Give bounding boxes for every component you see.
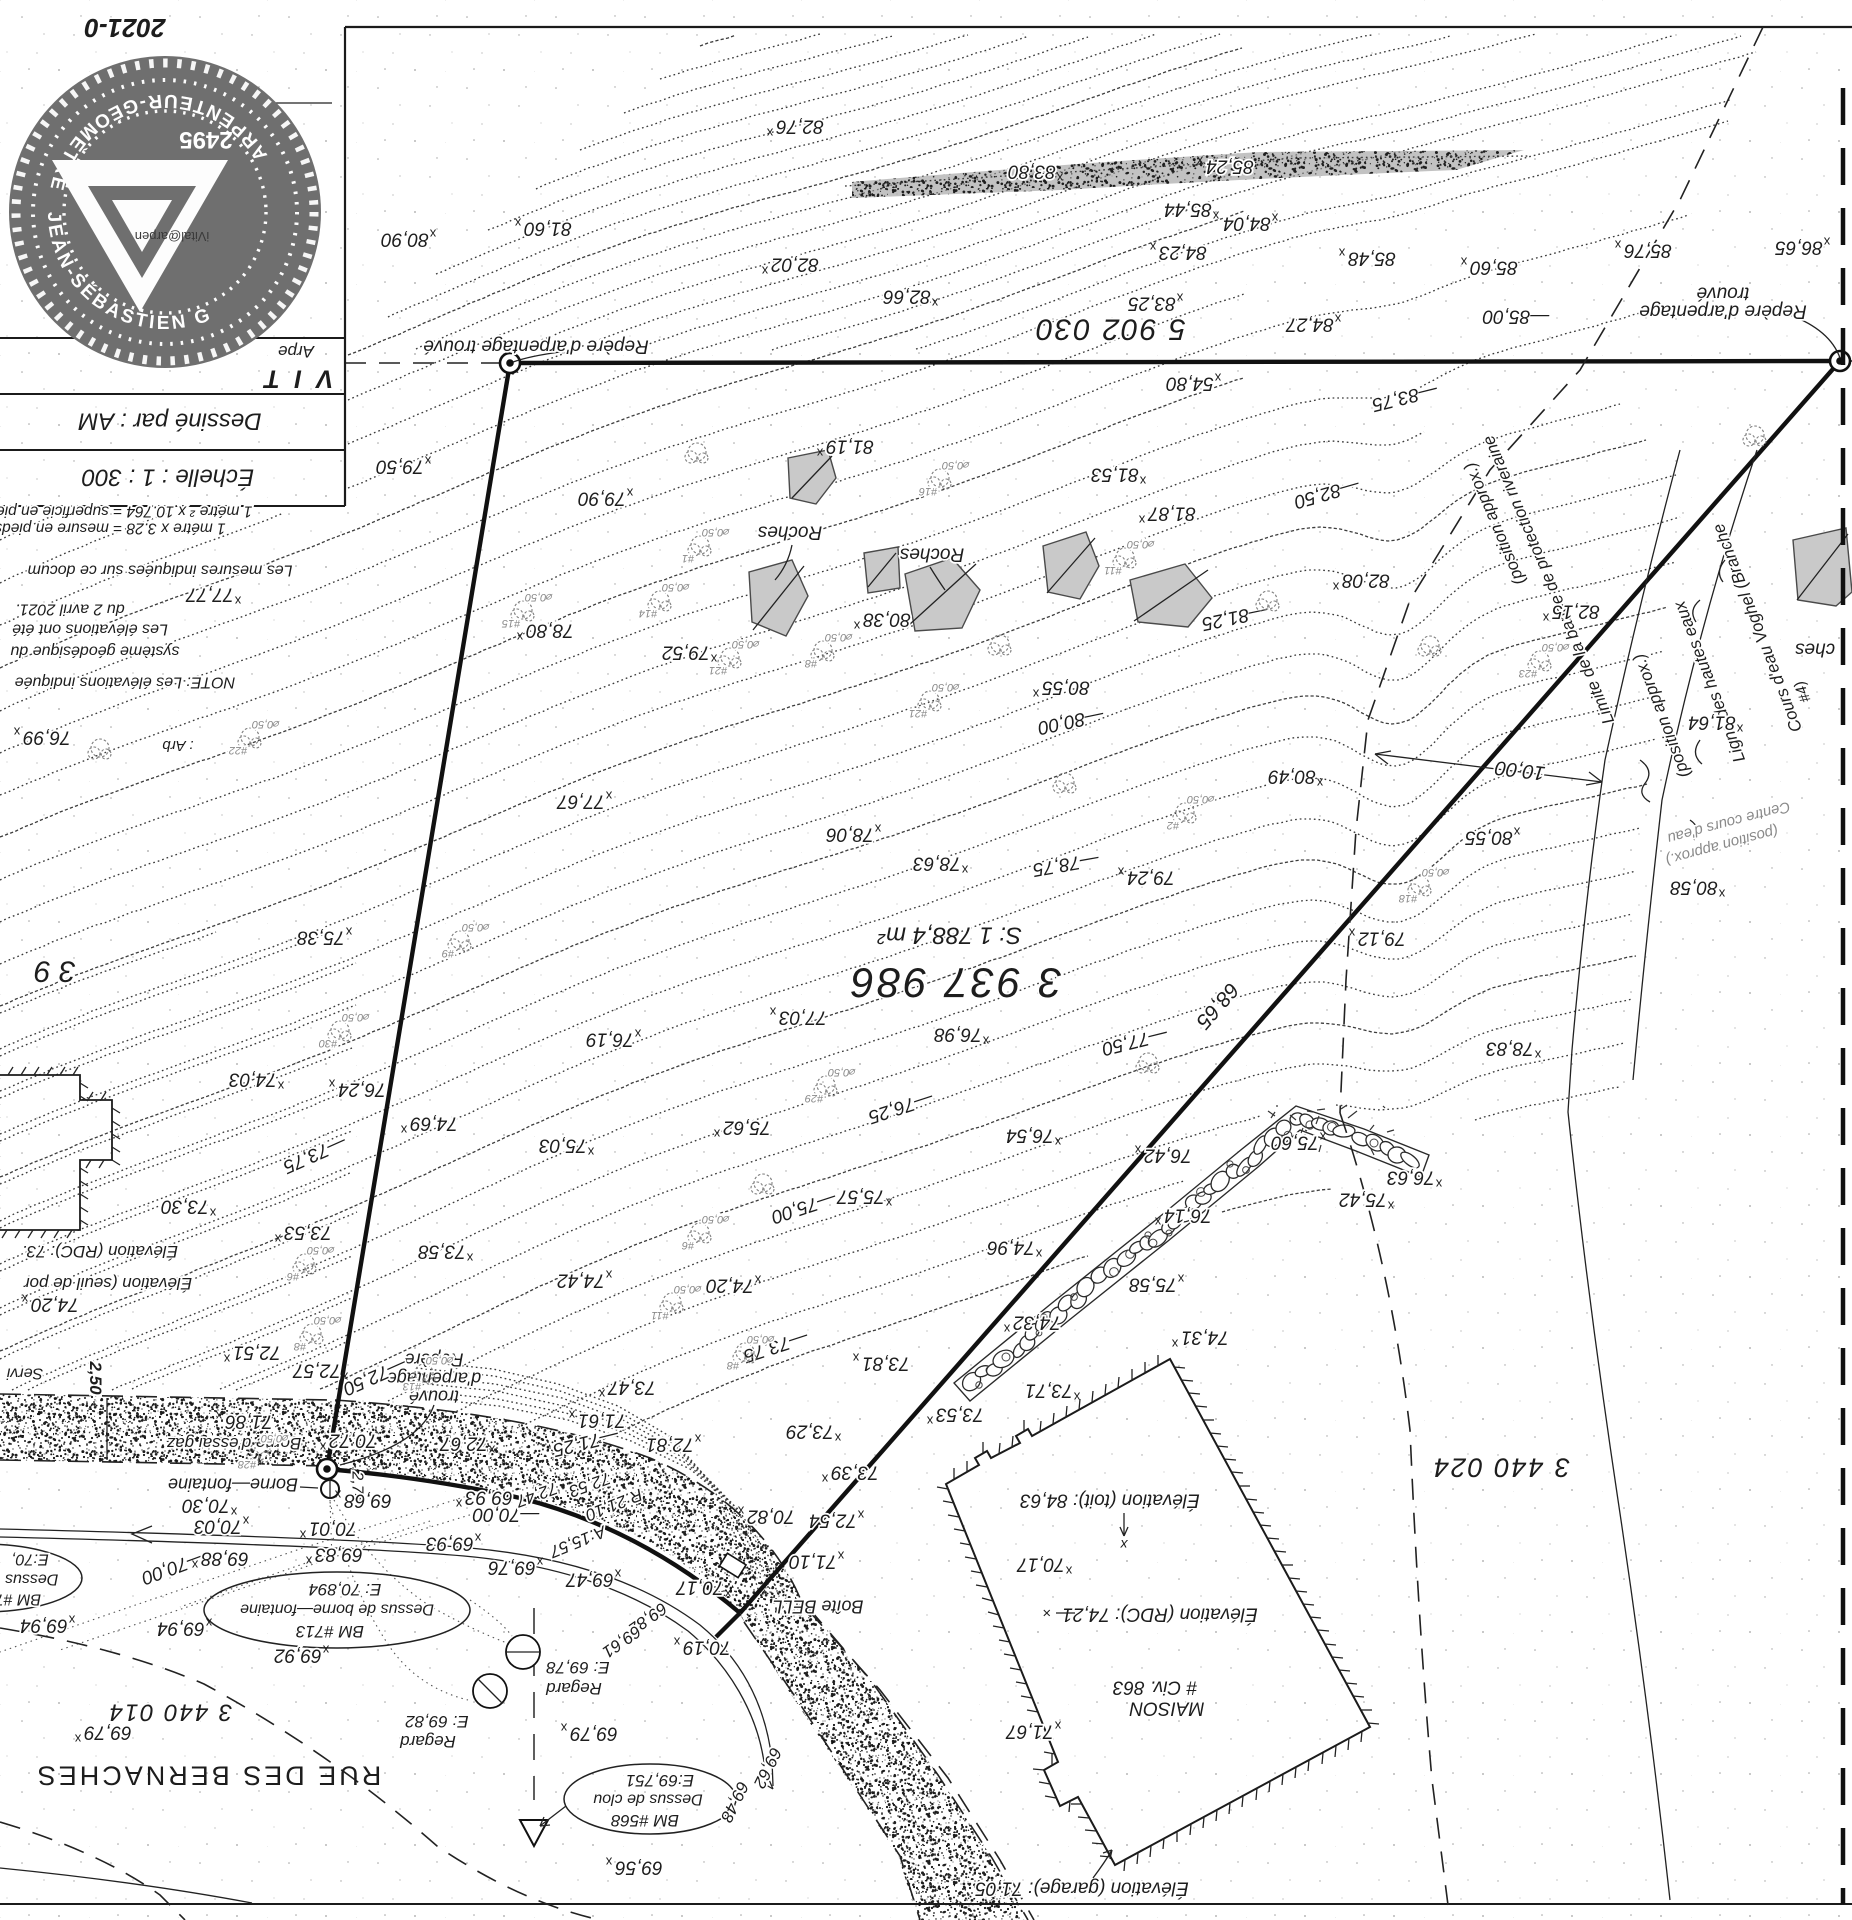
svg-text:⌀0,50: ⌀0,50 <box>313 1314 342 1326</box>
svg-text:⌀0,50: ⌀0,50 <box>260 1432 289 1444</box>
svg-text:x: x <box>345 924 352 939</box>
svg-text:75,03: 75,03 <box>539 1134 587 1155</box>
svg-text:76,98: 76,98 <box>934 1023 982 1044</box>
svg-text:x: x <box>488 1442 495 1457</box>
svg-text:x: x <box>1338 245 1345 260</box>
svg-text:x: x <box>305 1553 312 1568</box>
svg-text:x: x <box>274 1231 281 1246</box>
svg-text:x: x <box>769 1004 776 1019</box>
svg-text:x: x <box>1319 1129 1326 1144</box>
svg-text:x: x <box>319 1439 326 1454</box>
svg-text:69,94: 69,94 <box>20 1614 68 1635</box>
svg-text:85,60: 85,60 <box>1470 256 1518 277</box>
svg-text:⌀0,50: ⌀0,50 <box>673 1283 702 1295</box>
svg-text:#29: #29 <box>805 1092 823 1104</box>
svg-text:77,77: 77,77 <box>185 583 234 604</box>
svg-text:E:69,751: E:69,751 <box>626 1771 694 1790</box>
svg-text:70,17: 70,17 <box>675 1576 724 1597</box>
svg-text:85,48: 85,48 <box>1348 247 1396 268</box>
svg-text:80,55: 80,55 <box>1042 676 1090 697</box>
svg-text:x: x <box>516 629 523 644</box>
svg-text:Dessus de clou: Dessus de clou <box>593 1790 702 1807</box>
svg-text:75,60: 75,60 <box>1271 1131 1319 1152</box>
svg-text:x: x <box>626 485 633 500</box>
svg-text:76,99: 76,99 <box>23 726 71 747</box>
svg-text:x: x <box>1056 170 1063 185</box>
svg-text:73,39: 73,39 <box>831 1461 879 1482</box>
svg-text:70,72: 70,72 <box>329 1429 377 1450</box>
svg-text:83,25: 83,25 <box>1128 292 1176 313</box>
svg-text:85,44: 85,44 <box>1164 198 1212 219</box>
svg-text:84,04: 84,04 <box>1223 212 1271 233</box>
svg-text:Élévation (RDC): 74,21: Élévation (RDC): 74,21 <box>1062 1603 1257 1624</box>
svg-text:x: x <box>1334 311 1341 326</box>
svg-text:Boîte BELL: Boîte BELL <box>772 1597 863 1617</box>
svg-text:# Civ. 863: # Civ. 863 <box>1113 1676 1198 1697</box>
svg-text:81,53: 81,53 <box>1091 463 1139 484</box>
svg-text:x: x <box>1271 210 1278 225</box>
svg-text:x: x <box>1117 864 1124 879</box>
svg-text:x: x <box>1035 1246 1042 1261</box>
svg-text:69,94: 69,94 <box>157 1617 205 1638</box>
svg-text:73,29: 73,29 <box>786 1420 834 1441</box>
svg-text:78,80: 78,80 <box>526 619 574 640</box>
svg-text:81,64: 81,64 <box>1688 711 1736 732</box>
svg-text:x: x <box>1214 370 1221 385</box>
svg-text:78,63: 78,63 <box>913 852 961 873</box>
svg-text:73,30: 73,30 <box>161 1195 209 1216</box>
svg-text:⌀0,50: ⌀0,50 <box>1541 641 1570 653</box>
svg-text:#16: #16 <box>918 485 937 497</box>
svg-text:x: x <box>1065 1563 1072 1578</box>
svg-text:—85,00: —85,00 <box>1482 305 1550 326</box>
svg-text:73,71: 73,71 <box>1025 1379 1073 1400</box>
svg-text:⌀0,50: ⌀0,50 <box>341 1011 370 1023</box>
svg-text:⌀0,50: ⌀0,50 <box>251 718 280 730</box>
svg-text:69,93: 69,93 <box>426 1532 474 1553</box>
svg-text:⌀0,50: ⌀0,50 <box>731 638 760 650</box>
svg-text:x: x <box>1120 1537 1129 1553</box>
svg-text:E: 69,82: E: 69,82 <box>405 1712 469 1731</box>
svg-text:#11: #11 <box>1104 564 1122 576</box>
svg-text:x: x <box>429 226 436 241</box>
svg-text:x: x <box>1196 153 1203 168</box>
svg-text:Les mesures indiquées sur ce d: Les mesures indiquées sur ce docum <box>27 561 292 578</box>
svg-text:#8: #8 <box>804 657 817 669</box>
svg-text:69,79: 69,79 <box>570 1722 618 1743</box>
svg-text:x: x <box>1736 721 1743 736</box>
svg-text:73,53: 73,53 <box>936 1403 984 1424</box>
svg-text:#8: #8 <box>726 1359 739 1371</box>
svg-text:⌀0,50: ⌀0,50 <box>524 591 553 603</box>
svg-text:⌀0,50: ⌀0,50 <box>306 1244 335 1256</box>
svg-text:x: x <box>761 263 768 278</box>
svg-text:3 937 986: 3 937 986 <box>848 959 1062 1006</box>
svg-text:#6: #6 <box>286 1270 299 1282</box>
svg-text:76,14: 76,14 <box>1164 1204 1212 1225</box>
svg-text:x: x <box>634 1026 641 1041</box>
svg-text:x: x <box>205 1615 212 1630</box>
svg-text:x: x <box>885 1195 892 1210</box>
svg-text:75,42: 75,42 <box>1339 1188 1387 1209</box>
svg-text:72,67: 72,67 <box>439 1432 488 1453</box>
svg-text:x: x <box>1542 610 1549 625</box>
svg-text:79,90: 79,90 <box>578 487 626 508</box>
svg-text:⌀0,50: ⌀0,50 <box>1186 793 1215 805</box>
svg-text:BM #568: BM #568 <box>610 1811 679 1830</box>
svg-text:E: 70,894: E: 70,894 <box>309 1580 382 1599</box>
svg-text:x: x <box>1177 1271 1184 1286</box>
svg-text:#21: #21 <box>709 664 727 676</box>
svg-text:⌀0,50: ⌀0,50 <box>1421 866 1450 878</box>
svg-text:2495: 2495 <box>179 126 232 153</box>
svg-text:69,76: 69,76 <box>488 1556 536 1577</box>
svg-text:#8: #8 <box>293 1340 306 1352</box>
svg-text:RUE DES BERNACHES: RUE DES BERNACHES <box>35 1761 382 1791</box>
svg-text:69,83: 69,83 <box>315 1543 363 1564</box>
svg-text:système géodésique du: système géodésique du <box>10 642 179 659</box>
svg-text:x: x <box>1316 775 1323 790</box>
svg-text:⌀0,50: ⌀0,50 <box>1126 538 1155 550</box>
svg-text:x: x <box>1718 886 1725 901</box>
svg-text:79,50: 79,50 <box>376 455 424 476</box>
svg-text:x: x <box>821 1471 828 1486</box>
svg-text:trouvé: trouvé <box>1697 282 1750 303</box>
svg-text:86,65: 86,65 <box>1775 236 1823 257</box>
svg-text:Roches: Roches <box>899 543 964 564</box>
svg-text:Repère d'arpentage trouvé: Repère d'arpentage trouvé <box>423 335 648 356</box>
svg-text:×: × <box>1043 1604 1052 1621</box>
svg-text:MAISON: MAISON <box>1129 1697 1204 1718</box>
svg-text:⌀0,50: ⌀0,50 <box>701 526 730 538</box>
svg-text:x: x <box>1154 1214 1161 1229</box>
svg-text:x: x <box>1614 237 1621 252</box>
svg-text:x: x <box>816 445 823 460</box>
svg-text:70,30: 70,30 <box>182 1494 230 1515</box>
svg-text:x: x <box>514 215 521 230</box>
svg-text:x: x <box>215 1408 222 1423</box>
svg-text:#15: #15 <box>501 617 520 629</box>
svg-text:x: x <box>1332 579 1339 594</box>
svg-text:74,03: 74,03 <box>229 1068 277 1089</box>
svg-text:x: x <box>1176 290 1183 305</box>
svg-text:Repère d'arpentage: Repère d'arpentage <box>1639 300 1806 321</box>
svg-text:Dessus d: Dessus d <box>0 1570 58 1587</box>
svg-text:Servi: Servi <box>6 1364 43 1381</box>
svg-text:54,80: 54,80 <box>1166 372 1214 393</box>
svg-text:x: x <box>234 593 241 608</box>
svg-text:Dessiné par : AM: Dessiné par : AM <box>78 408 261 435</box>
svg-text:85,76: 85,76 <box>1624 239 1672 260</box>
svg-text:#22: #22 <box>229 744 247 756</box>
svg-text:⌀0,50: ⌀0,50 <box>931 681 960 693</box>
svg-text:⌀0,50: ⌀0,50 <box>746 1333 775 1345</box>
svg-text:75,62: 75,62 <box>723 1116 771 1137</box>
svg-text:x: x <box>614 1566 621 1581</box>
svg-text:84,27: 84,27 <box>1285 313 1334 334</box>
svg-text:75,38: 75,38 <box>297 926 345 947</box>
svg-text:73,81: 73,81 <box>862 1352 910 1373</box>
svg-text:77,03: 77,03 <box>779 1006 827 1027</box>
svg-text:x: x <box>766 125 773 140</box>
svg-text:1 métre x 3.28 = mesure en p: 1 métre x 3.28 = mesure en pieds <box>0 520 226 537</box>
svg-text:69,79: 69,79 <box>84 1721 132 1742</box>
svg-text:#18: #18 <box>1398 892 1417 904</box>
svg-text:Les élévations ont été: Les élévations ont été <box>12 620 168 637</box>
svg-text:#13: #13 <box>402 1380 421 1392</box>
svg-text:Regard: Regard <box>400 1732 456 1751</box>
svg-text:x: x <box>694 1431 701 1446</box>
svg-text:Arpe: Arpe <box>278 342 315 361</box>
svg-text:x: x <box>68 1612 75 1627</box>
svg-text:82,66: 82,66 <box>883 285 931 306</box>
svg-text:x: x <box>1513 824 1520 839</box>
svg-text:BM #7: BM #7 <box>0 1590 41 1607</box>
svg-text:74,20: 74,20 <box>31 1293 79 1314</box>
svg-text:x: x <box>853 618 860 633</box>
svg-text:2021-0: 2021-0 <box>84 13 166 43</box>
svg-text:76,24: 76,24 <box>338 1078 386 1099</box>
svg-text:79,52: 79,52 <box>662 641 710 662</box>
svg-text:80,55: 80,55 <box>1465 826 1513 847</box>
svg-text:NOTE: Les élévations indiquée: NOTE: Les élévations indiquée <box>15 673 236 690</box>
svg-text:74,20: 74,20 <box>706 1274 754 1295</box>
svg-text:x: x <box>1460 254 1467 269</box>
svg-text:74,31: 74,31 <box>1181 1326 1229 1347</box>
svg-text:79,12: 79,12 <box>1358 927 1406 948</box>
svg-text:#6: #6 <box>681 1239 694 1251</box>
svg-text:⌀0,50: ⌀0,50 <box>661 581 690 593</box>
svg-text:x: x <box>605 1854 612 1869</box>
svg-text:x: x <box>1171 1336 1178 1351</box>
svg-text:x: x <box>1054 1134 1061 1149</box>
svg-text:iVital@arpen: iVital@arpen <box>135 229 209 244</box>
svg-text:S: 1 788,4 m²: S: 1 788,4 m² <box>877 922 1022 949</box>
svg-text:x: x <box>1073 1389 1080 1404</box>
svg-text:76,63: 76,63 <box>1387 1166 1435 1187</box>
svg-text:76,19: 76,19 <box>586 1028 634 1049</box>
svg-text:x: x <box>1032 686 1039 701</box>
svg-text:#9: #9 <box>442 947 454 959</box>
svg-text:71,10: 71,10 <box>789 1550 837 1571</box>
svg-text:x: x <box>1149 239 1156 254</box>
svg-text:x: x <box>223 1351 230 1366</box>
svg-text:83,80: 83,80 <box>1008 160 1056 181</box>
svg-text:x: x <box>455 1496 462 1511</box>
svg-text:x: x <box>931 295 938 310</box>
svg-text:81,87: 81,87 <box>1147 502 1196 523</box>
svg-text:x: x <box>466 1250 473 1265</box>
svg-text:#21: #21 <box>909 707 927 719</box>
svg-text:74,96: 74,96 <box>987 1236 1035 1257</box>
svg-text:x: x <box>1212 208 1219 223</box>
svg-text:71,86: 71,86 <box>225 1410 273 1431</box>
svg-text:x: x <box>568 1407 575 1422</box>
svg-text:69,68: 69,68 <box>344 1489 392 1510</box>
svg-text:81,60: 81,60 <box>524 217 572 238</box>
svg-text:x: x <box>74 1731 81 1746</box>
svg-text:x: x <box>605 788 612 803</box>
svg-text:x: x <box>605 1267 612 1282</box>
svg-text:x: x <box>13 724 20 739</box>
svg-text:70,01: 70,01 <box>309 1517 357 1538</box>
svg-text:82,76: 82,76 <box>776 115 824 136</box>
svg-text:72,81: 72,81 <box>646 1433 694 1454</box>
svg-text:#11: #11 <box>651 1309 669 1321</box>
svg-text:5 902 030: 5 902 030 <box>1034 313 1185 346</box>
svg-text:84,23: 84,23 <box>1159 241 1207 262</box>
svg-text:72,51: 72,51 <box>233 1341 281 1362</box>
svg-text:2,50: 2,50 <box>86 1360 105 1395</box>
svg-text:78,83: 78,83 <box>1486 1037 1534 1058</box>
svg-text:80,49: 80,49 <box>1268 765 1316 786</box>
svg-text:Roches: Roches <box>757 521 822 542</box>
svg-text:x: x <box>536 1554 543 1569</box>
svg-text:#2: #2 <box>1167 819 1179 831</box>
svg-text:x: x <box>21 1291 28 1306</box>
svg-text:x: x <box>230 1504 237 1519</box>
svg-text:Élévation (toit): 84,63: Élévation (toit): 84,63 <box>1020 1489 1200 1510</box>
svg-text:74,42: 74,42 <box>557 1269 605 1290</box>
svg-text:x: x <box>724 1586 731 1601</box>
svg-text:V I T: V I T <box>261 364 334 392</box>
svg-text:x: x <box>400 1122 407 1137</box>
svg-text:x: x <box>754 1272 761 1287</box>
svg-text:x: x <box>1387 1198 1394 1213</box>
svg-text:80,90: 80,90 <box>381 228 429 249</box>
svg-text:x: x <box>1138 512 1145 527</box>
svg-text:73,53: 73,53 <box>284 1221 332 1242</box>
svg-text:x: x <box>673 1634 680 1649</box>
svg-text:x: x <box>424 453 431 468</box>
svg-text:x: x <box>474 1530 481 1545</box>
svg-text:ches: ches <box>1794 638 1835 659</box>
svg-text:71,67: 71,67 <box>1005 1720 1054 1741</box>
svg-text:E: 69,78: E: 69,78 <box>546 1658 610 1677</box>
svg-text:70,19: 70,19 <box>683 1636 731 1657</box>
svg-text:x: x <box>341 1369 348 1384</box>
svg-text:82,02: 82,02 <box>771 253 819 274</box>
svg-text:x: x <box>328 1076 335 1091</box>
svg-text:x: x <box>1534 1047 1541 1062</box>
svg-text:x: x <box>1003 1321 1010 1336</box>
svg-text:x: x <box>334 1487 341 1502</box>
svg-text:⌀0,50: ⌀0,50 <box>941 459 970 471</box>
svg-text:x: x <box>587 1144 594 1159</box>
svg-text:x: x <box>926 1413 933 1428</box>
svg-text:x: x <box>874 821 881 836</box>
svg-text:⌀0,50: ⌀0,50 <box>701 1213 730 1225</box>
svg-text:Dessus de borne—fontaine: Dessus de borne—fontaine <box>240 1600 434 1617</box>
svg-text:x: x <box>1823 234 1830 249</box>
svg-text:x: x <box>1134 1142 1141 1157</box>
svg-text:x: x <box>961 862 968 877</box>
svg-text:x: x <box>837 1548 844 1563</box>
svg-text:x: x <box>242 1513 249 1528</box>
svg-text:82,15: 82,15 <box>1552 600 1600 621</box>
svg-text:x: x <box>852 1350 859 1365</box>
svg-text:69,47: 69,47 <box>565 1568 614 1589</box>
svg-text:x: x <box>737 1503 744 1518</box>
svg-text:Échelle : 1 : 300: Échelle : 1 : 300 <box>81 464 254 491</box>
svg-text:Borne—fontaine: Borne—fontaine <box>168 1475 298 1495</box>
svg-text:: Arb: : Arb <box>162 737 193 754</box>
svg-text:Élévation (RDC): 73.: Élévation (RDC): 73. <box>22 1242 178 1261</box>
svg-text:76,54: 76,54 <box>1006 1124 1054 1145</box>
svg-text:x: x <box>857 1507 864 1522</box>
svg-text:75,57: 75,57 <box>836 1185 885 1206</box>
svg-text:70,17: 70,17 <box>1016 1553 1065 1574</box>
svg-text:E:70,: E:70, <box>11 1550 48 1567</box>
svg-text:79,24: 79,24 <box>1127 866 1175 887</box>
svg-text:3 9: 3 9 <box>34 955 76 988</box>
svg-text:⌀0,50: ⌀0,50 <box>425 1354 454 1366</box>
svg-text:82,08: 82,08 <box>1342 569 1390 590</box>
svg-text:75,58: 75,58 <box>1129 1273 1177 1294</box>
svg-text:⌀0,50: ⌀0,50 <box>461 921 490 933</box>
svg-text:BM #713: BM #713 <box>295 1622 364 1641</box>
svg-text:1 métre ² x 10.764 = superfici: 1 métre ² x 10.764 = superficie en pieds <box>0 503 252 520</box>
svg-text:x: x <box>322 1642 329 1657</box>
svg-text:72,54: 72,54 <box>809 1509 857 1530</box>
svg-text:x: x <box>713 1126 720 1141</box>
svg-text:x: x <box>834 1430 841 1445</box>
svg-text:x: x <box>299 1527 306 1542</box>
svg-text:80,58: 80,58 <box>1670 876 1718 897</box>
svg-text:81,19: 81,19 <box>826 435 874 456</box>
svg-text:78,06: 78,06 <box>826 823 874 844</box>
svg-text:73,47: 73,47 <box>607 1376 656 1397</box>
svg-text:80,38: 80,38 <box>863 608 911 629</box>
svg-text:69,92: 69,92 <box>274 1644 322 1665</box>
svg-text:#1: #1 <box>682 552 694 564</box>
svg-text:#23: #23 <box>1518 667 1537 679</box>
svg-text:⌀0,50: ⌀0,50 <box>827 1066 856 1078</box>
svg-text:#14: #14 <box>639 607 657 619</box>
svg-text:#28: #28 <box>237 1458 256 1470</box>
svg-text:du 2 avril 2021.: du 2 avril 2021. <box>15 600 124 617</box>
svg-text:77,67: 77,67 <box>556 790 605 811</box>
svg-text:#30: #30 <box>318 1037 337 1049</box>
svg-text:73,58: 73,58 <box>418 1240 466 1261</box>
svg-text:x: x <box>1139 473 1146 488</box>
svg-text:3 440 024: 3 440 024 <box>1432 1453 1570 1483</box>
svg-text:x: x <box>560 1720 567 1735</box>
svg-text:Regard: Regard <box>546 1679 602 1698</box>
svg-text:⌀0,50: ⌀0,50 <box>824 631 853 643</box>
svg-text:69,56: 69,56 <box>615 1856 663 1877</box>
svg-text:Élévation (seuil de por: Élévation (seuil de por <box>23 1274 193 1293</box>
svg-text:85,24: 85,24 <box>1206 155 1254 176</box>
svg-text:x: x <box>191 1557 198 1572</box>
svg-text:71,61: 71,61 <box>578 1409 626 1430</box>
svg-text:x: x <box>277 1078 284 1093</box>
svg-text:Élévation (garage): 71,05: Élévation (garage): 71,05 <box>975 1877 1189 1898</box>
svg-text:x: x <box>1054 1718 1061 1733</box>
svg-text:x: x <box>982 1033 989 1048</box>
svg-text:x: x <box>1435 1176 1442 1191</box>
svg-text:69,93: 69,93 <box>465 1486 513 1507</box>
svg-text:x: x <box>1348 925 1355 940</box>
svg-text:72,57: 72,57 <box>292 1359 341 1380</box>
svg-text:69,88: 69,88 <box>201 1547 249 1568</box>
svg-text:x: x <box>598 1386 605 1401</box>
svg-text:74,69: 74,69 <box>410 1112 458 1133</box>
svg-text:74,32: 74,32 <box>1013 1311 1061 1332</box>
svg-text:70,82: 70,82 <box>747 1505 795 1526</box>
svg-text:76,42: 76,42 <box>1144 1144 1192 1165</box>
svg-text:x: x <box>209 1205 216 1220</box>
